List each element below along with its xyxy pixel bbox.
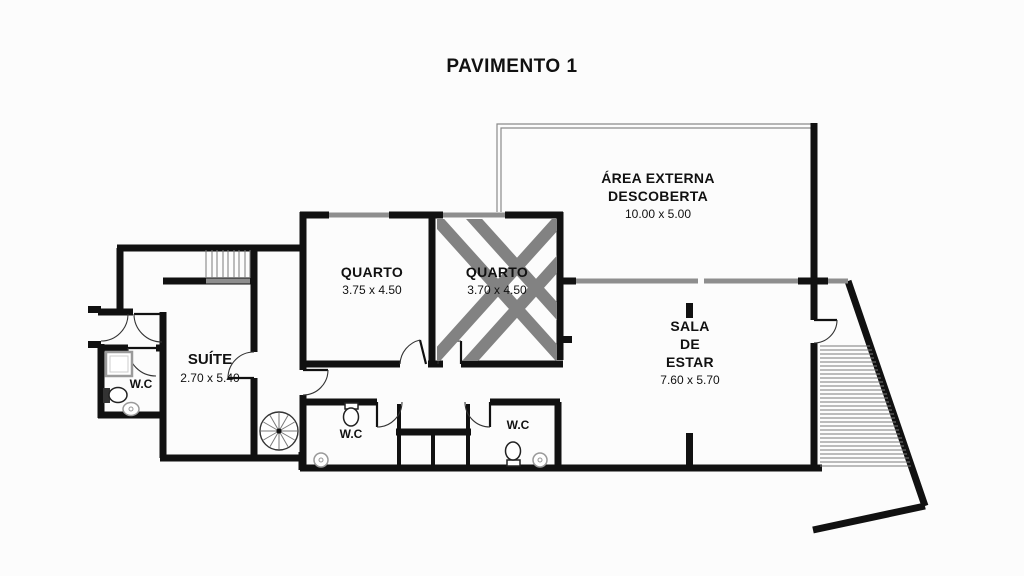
area-externa-label-2: DESCOBERTA [608, 188, 708, 204]
area-externa-dims: 10.00 x 5.00 [625, 207, 691, 221]
floor-plan-drawing: PAVIMENTO 1 [0, 0, 1024, 576]
suite-dims: 2.70 x 5.40 [180, 371, 240, 385]
sala-label-2: DE [680, 336, 700, 352]
quarto1-label: QUARTO [341, 264, 403, 280]
wall-stub [686, 433, 693, 467]
suite-label: SUÍTE [188, 351, 232, 368]
quarto2-dims: 3.70 x 4.50 [467, 283, 527, 297]
page-title: PAVIMENTO 1 [446, 56, 577, 77]
floor-plan: PAVIMENTO 1 [0, 0, 1024, 576]
wall-stub [686, 303, 693, 318]
entrance-jamb [88, 341, 101, 348]
wc-left-label: W.C [340, 427, 363, 441]
toilet-icon [344, 403, 359, 426]
sink-icon [533, 453, 547, 467]
spiral-staircase-icon [260, 412, 298, 450]
wc-right-label: W.C [507, 418, 530, 432]
sala-label-1: SALA [670, 318, 709, 334]
toilet-icon [103, 388, 127, 404]
wall-stub [560, 336, 572, 343]
shower-icon [106, 352, 132, 376]
entrance-jamb [88, 306, 101, 313]
sala-dims: 7.60 x 5.70 [660, 373, 720, 387]
area-externa-label: ÁREA EXTERNA [601, 170, 715, 186]
wc-suite-label: W.C [130, 377, 153, 391]
sink-icon [314, 453, 328, 467]
sala-label-3: ESTAR [666, 354, 714, 370]
toilet-icon [506, 442, 521, 466]
quarto1-dims: 3.75 x 4.50 [342, 283, 402, 297]
quarto2-label: QUARTO [466, 264, 528, 280]
sink-icon [123, 403, 139, 416]
